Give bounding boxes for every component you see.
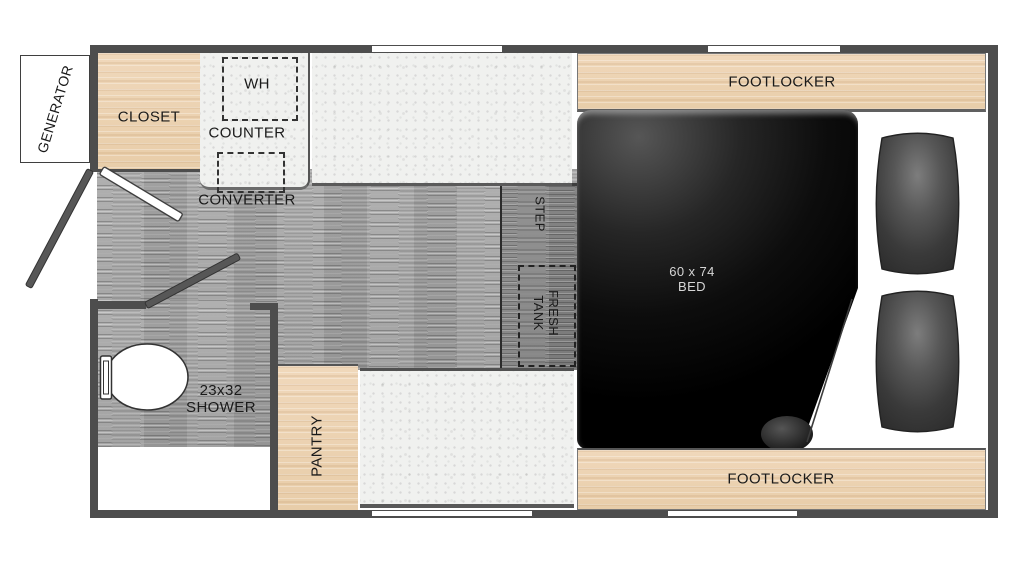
bed-area (577, 110, 858, 449)
bathroom-wall-top-left (90, 301, 146, 309)
pantry-label: PANTRY (308, 415, 325, 477)
closet-label: CLOSET (118, 108, 180, 125)
fresh-tank-label-line2: TANK (530, 290, 545, 336)
dinette-platform (360, 368, 574, 508)
exterior-wall-top (90, 45, 998, 53)
shower-label-size: 23x32 (186, 382, 256, 399)
window-opening-bottom-left (372, 511, 532, 516)
converter-label: CONVERTER (198, 191, 296, 208)
fresh-tank-label: FRESH TANK (530, 290, 560, 336)
counter-area-top (312, 53, 572, 186)
entry-door-swing (25, 169, 93, 289)
exterior-wall-bottom (90, 510, 998, 518)
floor-plan: GENERATOR CLOSET WH COUNTER CONVERTER ST… (0, 0, 1024, 578)
bed-label-text: BED (669, 280, 714, 295)
converter-box (217, 152, 285, 193)
window-opening-bottom-right (668, 511, 797, 516)
water-heater-label: WH (244, 75, 270, 92)
seat-1 (876, 133, 959, 274)
bed-label: 60 x 74 BED (669, 265, 714, 295)
exterior-wall-left-lower (90, 299, 98, 518)
footlocker-bottom-label: FOOTLOCKER (727, 470, 834, 487)
step-label: STEP (532, 196, 547, 232)
window-opening-top-left (372, 46, 502, 52)
bed-label-size: 60 x 74 (669, 265, 714, 280)
footlocker-top-label: FOOTLOCKER (728, 73, 835, 90)
bathroom-floor (97, 300, 277, 447)
storage-floor (97, 447, 272, 511)
fresh-tank-label-line1: FRESH (545, 290, 560, 336)
exterior-wall-right (988, 45, 998, 518)
seat-2 (876, 291, 959, 432)
bathroom-wall-right (270, 303, 278, 513)
shower-label-text: SHOWER (186, 399, 256, 416)
window-opening-top-right (708, 46, 840, 52)
counter-label: COUNTER (209, 124, 286, 141)
exterior-wall-left-upper (90, 45, 98, 172)
shower-label: 23x32 SHOWER (186, 382, 256, 417)
